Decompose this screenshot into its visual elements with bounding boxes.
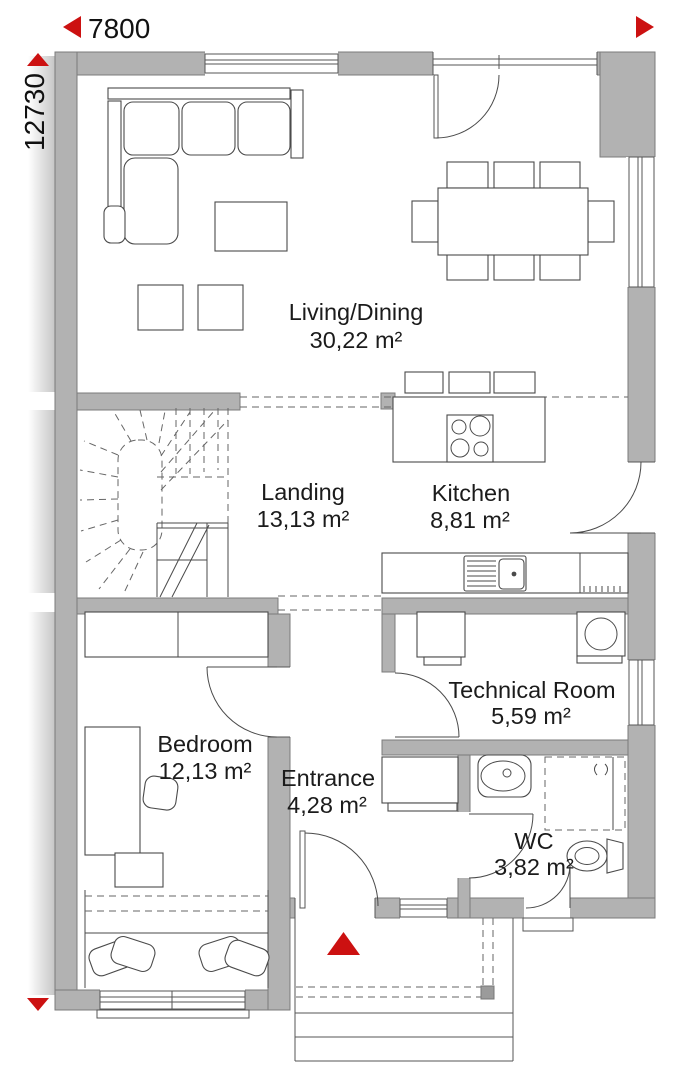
wardrobe <box>85 612 268 657</box>
pouf <box>138 285 183 330</box>
staircase <box>80 408 228 597</box>
floor-plan: 7800 12730 Living/Dining 30,22 m² Landin… <box>0 0 679 1080</box>
bed <box>85 890 272 988</box>
bar-stool <box>494 372 535 393</box>
coffee-table <box>215 202 287 251</box>
dimension-arrow-down-icon <box>27 998 49 1011</box>
room-area-technical-room: 5,59 m² <box>491 703 571 729</box>
technical-room-window <box>629 660 654 725</box>
pillow <box>222 938 271 979</box>
washbasin <box>478 755 531 797</box>
room-area-landing: 13,13 m² <box>257 506 350 532</box>
room-area-kitchen: 8,81 m² <box>430 507 510 533</box>
hob <box>447 415 493 462</box>
boiler <box>417 612 465 665</box>
toilet <box>567 839 623 873</box>
height-dimension-label: 12730 <box>19 73 50 151</box>
room-area-living-dining: 30,22 m² <box>310 327 403 353</box>
width-dimension-label: 7800 <box>88 13 150 44</box>
entrance-window <box>400 899 447 917</box>
room-label-bedroom: Bedroom <box>157 731 252 757</box>
entrance-closet <box>382 757 458 803</box>
side-table <box>115 853 163 887</box>
entrance-fixtures <box>382 757 458 811</box>
dimension-arrow-left-icon <box>63 16 81 38</box>
dining-window <box>629 157 654 287</box>
bedroom-furniture <box>85 612 272 988</box>
shower <box>545 757 625 830</box>
floor-plan-page: 7800 12730 Living/Dining 30,22 m² Landin… <box>0 0 679 1080</box>
porch <box>295 918 513 1061</box>
room-area-bedroom: 12,13 m² <box>159 758 252 784</box>
washing-machine <box>577 612 625 663</box>
room-area-entrance: 4,28 m² <box>287 792 367 818</box>
room-label-living-dining: Living/Dining <box>289 299 424 325</box>
desk <box>85 727 140 855</box>
room-label-landing: Landing <box>261 479 345 505</box>
kitchen-counter <box>382 553 628 593</box>
dining-set <box>412 162 614 280</box>
room-area-wc: 3,82 m² <box>494 854 574 880</box>
bar-stool <box>405 372 443 393</box>
room-label-entrance: Entrance <box>281 765 375 791</box>
entrance-arrow-icon <box>327 932 360 955</box>
room-label-technical-room: Technical Room <box>448 677 615 703</box>
bar-stool <box>449 372 490 393</box>
dimension-arrow-right-icon <box>636 16 654 38</box>
bedroom-window <box>97 991 249 1018</box>
adjoining-wall-strip <box>28 56 55 995</box>
living-furniture <box>104 88 614 330</box>
living-window <box>205 54 338 73</box>
pouf <box>198 285 243 330</box>
technical-room-fixtures <box>417 612 625 665</box>
room-label-kitchen: Kitchen <box>432 480 510 506</box>
dining-table <box>438 188 588 255</box>
room-label-wc: WC <box>514 828 553 854</box>
terrace-door <box>433 52 597 138</box>
porch-post <box>481 986 494 999</box>
sink <box>464 556 526 591</box>
